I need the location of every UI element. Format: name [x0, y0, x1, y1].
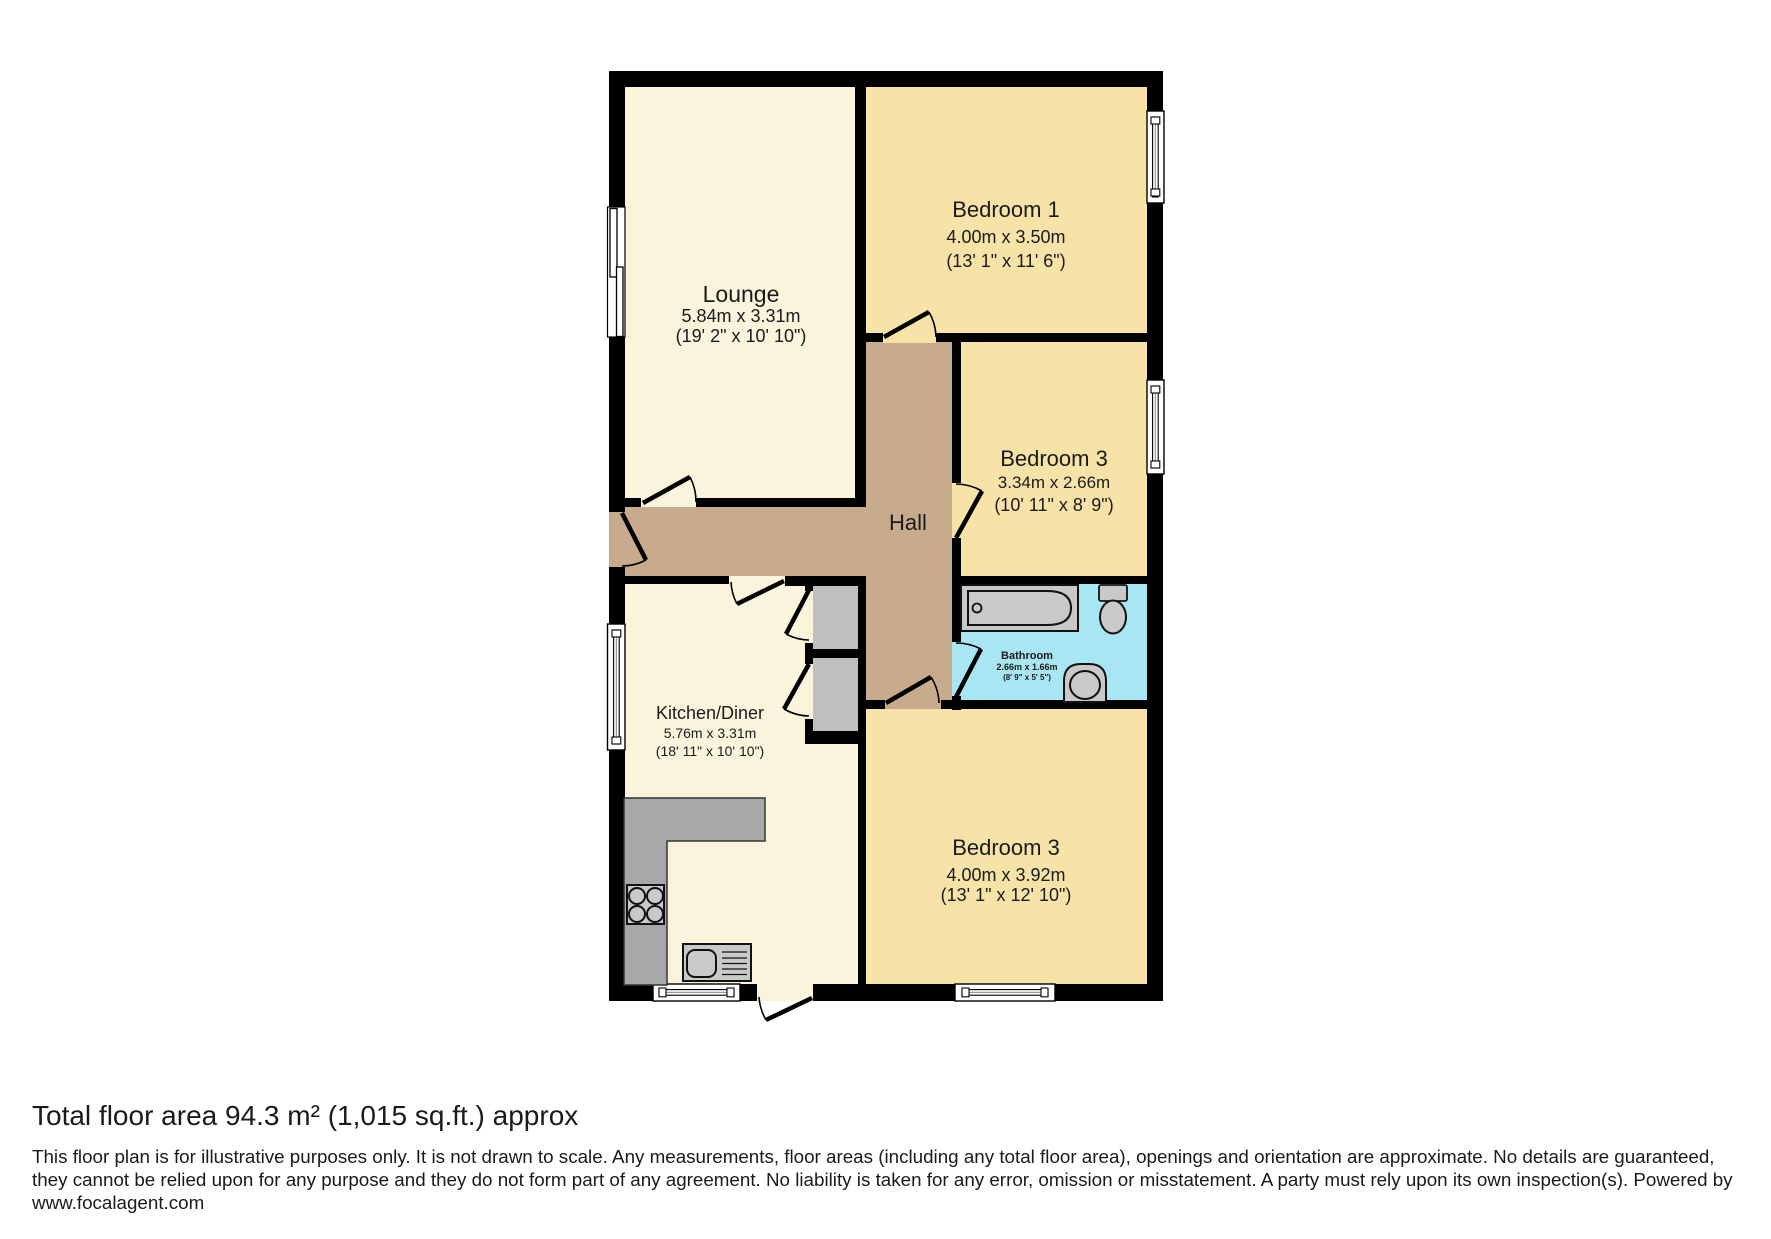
svg-text:5.84m x 3.31m: 5.84m x 3.31m — [681, 306, 800, 326]
svg-text:4.00m x 3.92m: 4.00m x 3.92m — [946, 865, 1065, 885]
svg-text:Total floor area 94.3 m² (1,01: Total floor area 94.3 m² (1,015 sq.ft.) … — [32, 1100, 578, 1131]
svg-text:Kitchen/Diner: Kitchen/Diner — [656, 703, 764, 723]
svg-text:Bathroom: Bathroom — [1001, 650, 1053, 662]
svg-text:Bedroom 3: Bedroom 3 — [952, 835, 1060, 860]
svg-text:(19' 2" x 10' 10"): (19' 2" x 10' 10") — [676, 326, 807, 346]
svg-text:www.focalagent.com: www.focalagent.com — [31, 1192, 204, 1213]
svg-text:Bedroom 3: Bedroom 3 — [1000, 446, 1108, 471]
svg-text:(10' 11" x 8' 9"): (10' 11" x 8' 9") — [994, 495, 1113, 515]
svg-text:Lounge: Lounge — [703, 281, 780, 307]
svg-text:Bedroom 1: Bedroom 1 — [952, 197, 1060, 222]
svg-text:they cannot be relied upon for: they cannot be relied upon for any purpo… — [32, 1169, 1733, 1190]
svg-text:2.66m x 1.66m: 2.66m x 1.66m — [996, 662, 1057, 672]
svg-text:5.76m x 3.31m: 5.76m x 3.31m — [664, 725, 757, 741]
svg-text:This floor plan is for illustr: This floor plan is for illustrative purp… — [32, 1146, 1715, 1167]
svg-text:Hall: Hall — [889, 510, 927, 535]
svg-text:(13' 1" x 12' 10"): (13' 1" x 12' 10") — [941, 885, 1072, 905]
svg-text:4.00m x 3.50m: 4.00m x 3.50m — [946, 227, 1065, 247]
svg-text:(8' 9" x 5' 5"): (8' 9" x 5' 5") — [1003, 673, 1051, 682]
svg-text:3.34m x 2.66m: 3.34m x 2.66m — [998, 473, 1110, 492]
svg-text:(18' 11" x 10' 10"): (18' 11" x 10' 10") — [656, 743, 764, 759]
svg-text:(13' 1" x 11' 6"): (13' 1" x 11' 6") — [946, 251, 1065, 271]
